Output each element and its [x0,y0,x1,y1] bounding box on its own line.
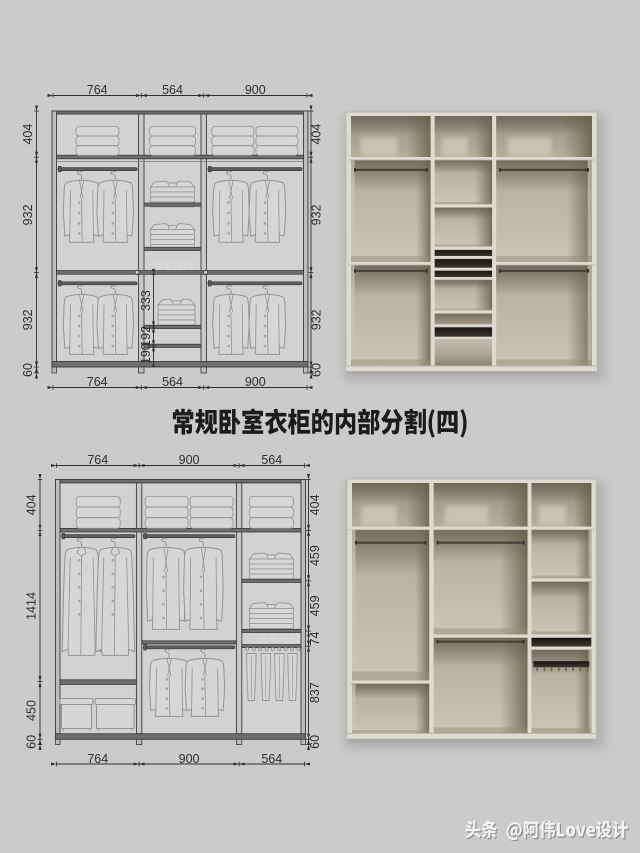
svg-text:900: 900 [179,752,200,766]
svg-text:190: 190 [139,343,153,364]
svg-text:932: 932 [310,309,324,330]
svg-text:764: 764 [87,752,108,766]
svg-text:404: 404 [310,124,324,145]
svg-text:74: 74 [308,632,322,646]
svg-text:564: 564 [162,375,183,389]
svg-text:60: 60 [21,363,35,377]
svg-text:900: 900 [245,83,266,97]
svg-text:932: 932 [21,309,35,330]
svg-text:564: 564 [162,83,183,97]
svg-text:564: 564 [261,752,282,766]
svg-text:459: 459 [308,595,322,616]
svg-text:60: 60 [310,363,324,377]
svg-text:932: 932 [21,204,35,225]
svg-text:333: 333 [139,290,153,311]
svg-text:404: 404 [21,124,35,145]
svg-text:932: 932 [310,204,324,225]
svg-text:450: 450 [25,700,39,721]
svg-text:60: 60 [308,735,322,749]
svg-text:404: 404 [25,494,39,515]
svg-text:1414: 1414 [25,592,39,620]
svg-text:900: 900 [179,453,200,467]
svg-text:764: 764 [87,375,108,389]
svg-text:459: 459 [308,545,322,566]
svg-text:764: 764 [87,453,108,467]
svg-text:564: 564 [261,453,282,467]
svg-text:900: 900 [245,375,266,389]
svg-text:404: 404 [308,494,322,515]
svg-text:60: 60 [25,735,39,749]
svg-text:837: 837 [308,682,322,703]
svg-text:764: 764 [87,83,108,97]
